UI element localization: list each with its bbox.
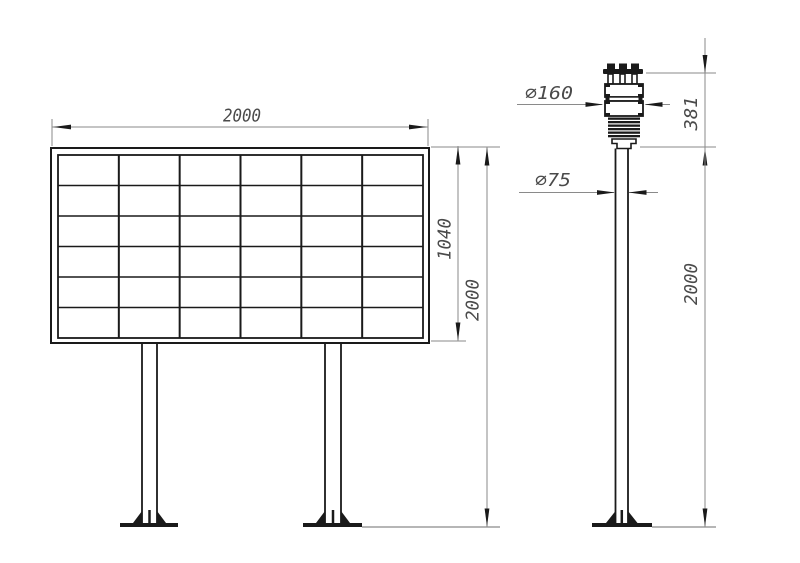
dim-pole-diameter: ∅75: [519, 170, 658, 195]
dim-label-pole-diameter: ∅75: [535, 170, 571, 191]
dim-pole-height: 2000: [681, 147, 707, 527]
board-panel: [51, 148, 429, 343]
pole-base: [592, 510, 652, 525]
dim-sensor-height: 381: [640, 38, 716, 166]
leg-base-right: [303, 510, 362, 525]
dim-label-pole-height: 2000: [681, 263, 702, 305]
dim-sensor-diameter: ∅160: [517, 83, 670, 107]
leg-base-left: [120, 510, 178, 525]
arrowhead-left: [645, 102, 663, 107]
technical-drawing: 2000 1040 2000: [0, 0, 800, 563]
arrowhead-up: [456, 147, 461, 165]
arrowhead-left: [53, 125, 71, 130]
display-board-view: 2000 1040 2000: [51, 106, 500, 528]
sensor-louvers: [608, 118, 640, 138]
sensor-pole: [616, 149, 629, 524]
dim-label-board-width: 2000: [223, 106, 261, 127]
arrowhead-down: [703, 509, 708, 527]
dim-board-overall-height: 2000: [431, 147, 500, 527]
arrowhead-down: [485, 509, 490, 527]
arrowhead-down: [456, 323, 461, 341]
dim-label-panel-height: 1040: [435, 218, 456, 260]
arrowhead-down: [703, 55, 708, 73]
sensor-pole-view: ∅160 ∅75 381 2000: [517, 38, 716, 527]
arrowhead-up: [485, 148, 490, 166]
sensor-body-lower: [605, 101, 643, 116]
dim-panel-height: 1040: [431, 146, 466, 341]
dim-board-width: 2000: [52, 106, 428, 147]
sensor-neck: [612, 139, 636, 149]
sensor-body-upper: [605, 84, 643, 97]
arrowhead-right: [409, 125, 427, 130]
dim-label-sensor-height: 381: [681, 97, 702, 132]
arrowhead-right: [597, 190, 615, 195]
dim-label-board-overall-height: 2000: [463, 279, 484, 321]
weather-sensor: [603, 64, 643, 149]
board-legs: [120, 343, 362, 525]
dim-label-sensor-diameter: ∅160: [525, 83, 573, 104]
arrowhead-left: [629, 190, 647, 195]
drawing-canvas: 2000 1040 2000: [0, 0, 800, 563]
arrowhead-right: [586, 102, 604, 107]
